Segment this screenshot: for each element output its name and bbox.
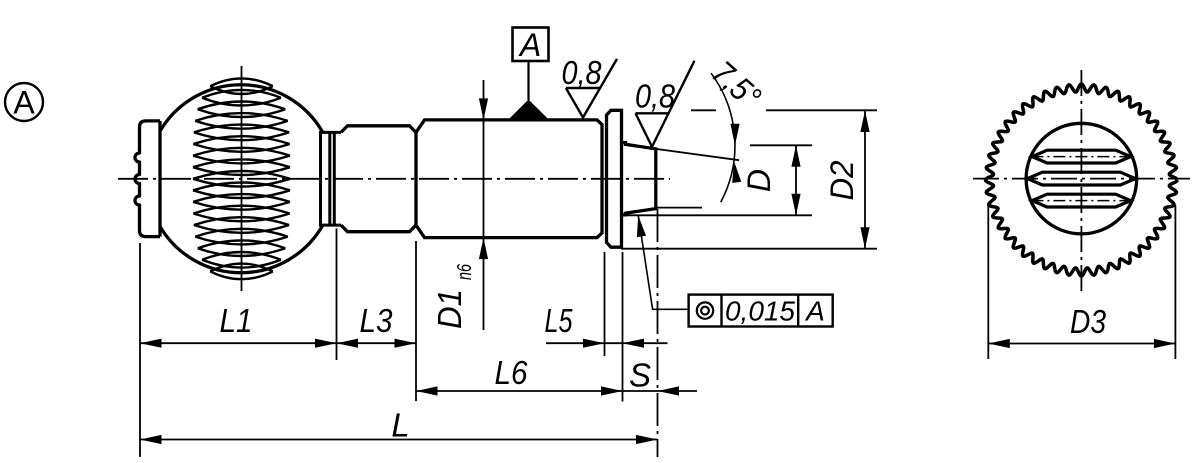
svg-text:0,8: 0,8: [562, 54, 603, 91]
svg-text:L1: L1: [220, 302, 253, 339]
svg-text:L5: L5: [545, 302, 573, 339]
svg-text:L3: L3: [360, 302, 394, 339]
svg-text:L: L: [391, 407, 409, 444]
svg-text:0,8: 0,8: [635, 78, 676, 115]
svg-text:L6: L6: [495, 354, 529, 391]
svg-text:n6: n6: [454, 263, 476, 280]
svg-text:D2: D2: [824, 160, 860, 200]
svg-text:A: A: [804, 296, 825, 327]
svg-text:D: D: [741, 169, 777, 192]
svg-text:S: S: [629, 357, 651, 394]
svg-text:A: A: [518, 27, 541, 63]
svg-text:D3: D3: [1070, 303, 1107, 340]
svg-text:0,015: 0,015: [725, 296, 795, 327]
svg-text:D1: D1: [431, 289, 468, 329]
svg-text:A: A: [13, 85, 35, 121]
